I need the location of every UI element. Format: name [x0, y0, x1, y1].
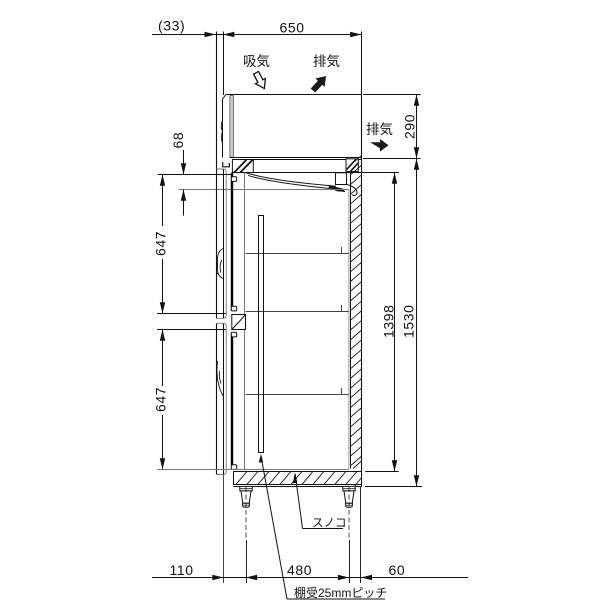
svg-text:(33): (33): [158, 18, 185, 34]
svg-text:290: 290: [402, 114, 418, 139]
svg-text:647: 647: [153, 231, 169, 256]
svg-text:480: 480: [287, 562, 312, 578]
svg-text:110: 110: [170, 562, 194, 578]
svg-text:60: 60: [389, 562, 406, 578]
svg-text:吸気: 吸気: [243, 54, 270, 69]
svg-text:68: 68: [170, 132, 186, 149]
svg-text:棚受25mmピッチ: 棚受25mmピッチ: [294, 585, 387, 600]
svg-text:スノコ: スノコ: [312, 518, 347, 530]
svg-text:647: 647: [153, 387, 169, 412]
svg-text:排気: 排気: [366, 122, 393, 137]
svg-text:排気: 排気: [313, 54, 340, 69]
svg-text:1530: 1530: [400, 304, 416, 338]
svg-text:650: 650: [280, 20, 305, 36]
svg-text:1398: 1398: [381, 304, 397, 338]
